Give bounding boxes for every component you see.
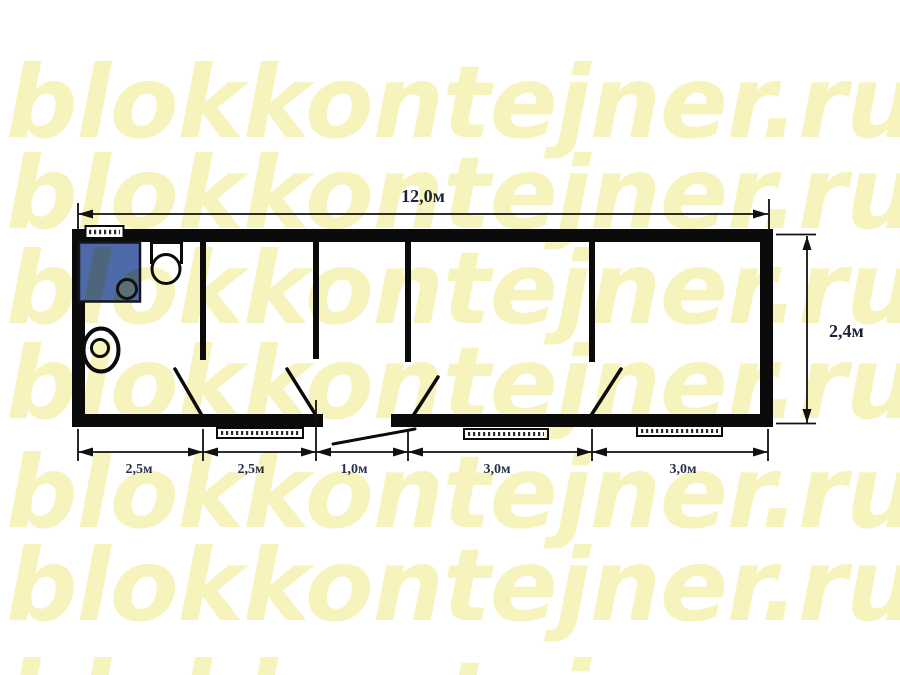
- window-top: [86, 226, 124, 238]
- door-swing: [590, 369, 621, 417]
- segment-label: 3,0м: [483, 462, 511, 477]
- arrowhead-icon: [803, 236, 812, 250]
- wall-bottom-left: [72, 414, 323, 427]
- partition-wall: [313, 242, 319, 359]
- dimension-right: [776, 235, 816, 424]
- segment-label: 2,5м: [237, 462, 265, 477]
- segment-label: 2,5м: [125, 462, 153, 477]
- dimension-label-width: 2,4м: [829, 321, 864, 341]
- floor-plan-drawing: 12,0м 2,4м: [0, 0, 900, 675]
- window-bottom: [637, 426, 722, 436]
- partition-wall: [200, 242, 206, 360]
- door-swing: [287, 369, 317, 417]
- window-bottom: [464, 429, 548, 439]
- partition-walls: [200, 242, 595, 362]
- sanitary-fixtures: [79, 243, 182, 372]
- segment-label: 3,0м: [669, 462, 697, 477]
- wall-top: [72, 229, 773, 242]
- toilet-inner: [92, 340, 109, 357]
- washbasin-bowl: [152, 255, 180, 284]
- window-bottom: [217, 428, 303, 438]
- arrowhead-icon: [803, 409, 812, 423]
- segment-label: 1,0м: [340, 462, 368, 477]
- door-swing: [175, 369, 204, 419]
- door-swing: [411, 377, 438, 419]
- wall-right: [760, 229, 773, 427]
- shower-drain: [118, 280, 137, 299]
- dimension-label-total-length: 12,0м: [401, 186, 445, 206]
- floor-plan-image: 12,0м 2,4м: [0, 0, 900, 675]
- partition-wall: [589, 242, 595, 362]
- entrance-door-swing: [333, 429, 415, 444]
- arrowhead-icon: [78, 210, 93, 219]
- arrowhead-icon: [753, 210, 768, 219]
- partition-wall: [405, 242, 411, 362]
